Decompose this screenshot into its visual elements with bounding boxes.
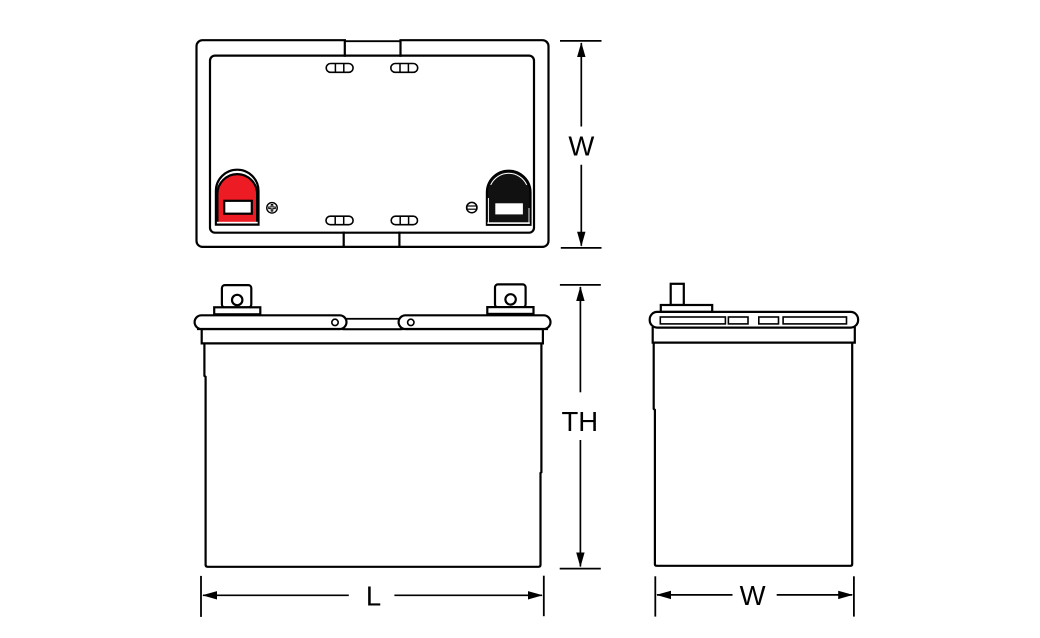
svg-text:TH: TH (561, 406, 598, 437)
svg-text:W: W (568, 130, 594, 161)
svg-text:W: W (740, 580, 766, 611)
svg-text:L: L (366, 581, 381, 612)
